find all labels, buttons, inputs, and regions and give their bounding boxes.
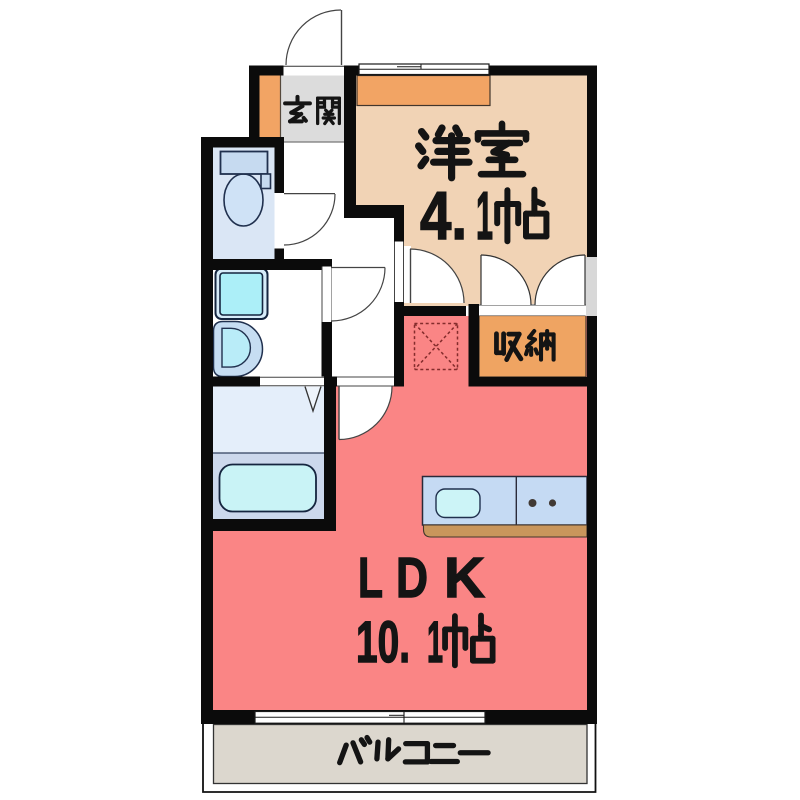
svg-text:D: D: [396, 546, 428, 610]
svg-text:L: L: [358, 546, 383, 610]
svg-text:1: 1: [476, 178, 493, 254]
svg-text:1: 1: [427, 610, 443, 675]
svg-text:K: K: [444, 546, 485, 610]
svg-text:4.: 4.: [420, 178, 467, 254]
svg-text:10.: 10.: [356, 610, 410, 675]
